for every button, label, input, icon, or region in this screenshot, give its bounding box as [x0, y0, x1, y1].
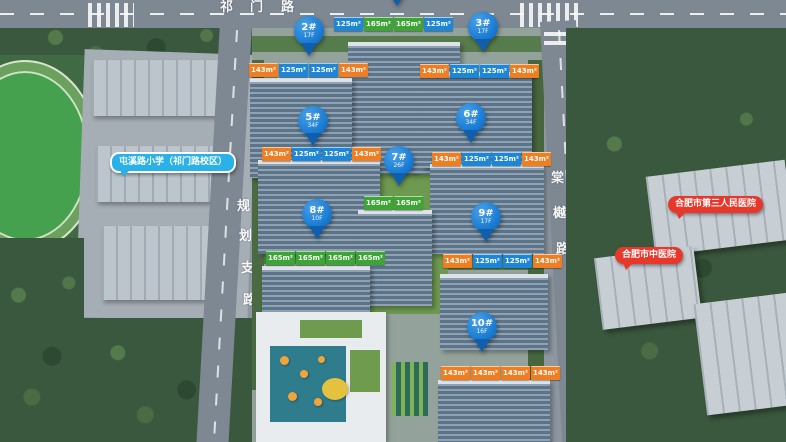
- unit-area-tag: 165m²: [364, 196, 393, 210]
- unit-area-tag: 125m²: [503, 254, 532, 268]
- unit-area-tag: 143m²: [352, 147, 381, 161]
- road-label-top: 祁: [220, 1, 233, 14]
- unit-area-tag: 143m²: [501, 366, 530, 380]
- road-label-left: 规: [237, 200, 250, 213]
- poi-tail-icon: [676, 212, 686, 219]
- unit-area-tag: 165m²: [364, 17, 393, 31]
- unit-area-tag: 143m²: [510, 64, 539, 78]
- pin-body: 2# 17F: [294, 16, 324, 46]
- building-pin-5[interactable]: 5# 34F: [297, 106, 329, 146]
- unit-area-tag: 125m²: [480, 64, 509, 78]
- unit-area-tag: 143m²: [443, 254, 472, 268]
- playground-mark: [318, 356, 325, 363]
- pin-body: 7# 26F: [384, 146, 414, 176]
- playground-sandpit: [322, 378, 348, 400]
- pin-tail-icon: [305, 133, 321, 146]
- unit-tags-building-8: 165m² 165m² 165m² 165m²: [266, 251, 385, 265]
- unit-area-tag: 143m²: [420, 64, 449, 78]
- road-label-right: 棠: [551, 172, 564, 185]
- pin-tail-icon: [475, 39, 491, 52]
- unit-area-tag: 125m²: [279, 63, 308, 77]
- unit-area-tag: 125m²: [462, 152, 491, 166]
- unit-area-tag: 143m²: [262, 147, 291, 161]
- pin-body: 6# 34F: [456, 103, 486, 133]
- unit-area-tag: 165m²: [266, 251, 295, 265]
- pin-floors: 10F: [311, 216, 322, 222]
- poi-bubble-school[interactable]: 屯溪路小学（祁门路校区）: [110, 152, 236, 173]
- unit-area-tag: 165m²: [326, 251, 355, 265]
- poi-label: 合肥市中医院: [622, 250, 676, 260]
- sports-court: [392, 362, 428, 416]
- pin-body: 3# 17F: [468, 12, 498, 42]
- pin-floors: 34F: [465, 120, 476, 126]
- pin-floors: 26F: [393, 163, 404, 169]
- pin-floors: 16F: [476, 329, 487, 335]
- unit-area-tag: 125m²: [450, 64, 479, 78]
- poi-tail-icon: [120, 170, 130, 177]
- unit-tags-building-2: 143m² 125m² 125m² 143m²: [249, 63, 368, 77]
- road-label-right: 樾: [553, 207, 566, 220]
- tower-10: [438, 380, 550, 442]
- unit-area-tag: 165m²: [394, 17, 423, 31]
- unit-tags-building-5: 143m² 125m² 125m² 143m²: [262, 147, 381, 161]
- unit-area-tag: 125m²: [309, 63, 338, 77]
- pin-tail-icon: [463, 130, 479, 143]
- unit-tags-building-10: 143m² 143m² 143m² 143m²: [441, 366, 560, 380]
- building-pin-7[interactable]: 7# 26F: [383, 146, 415, 186]
- unit-area-tag: 143m²: [522, 152, 551, 166]
- poi-label: 合肥市第三人民医院: [675, 199, 756, 209]
- poi-bubble-hospital-3rd[interactable]: 合肥市第三人民医院: [668, 196, 763, 213]
- unit-area-tag: 125m²: [424, 17, 453, 31]
- pin-tail-icon: [301, 43, 317, 56]
- unit-area-tag: 143m²: [471, 366, 500, 380]
- building-pin-8[interactable]: 8# 10F: [301, 199, 333, 239]
- unit-area-tag: 125m²: [334, 17, 363, 31]
- pin-body: 10# 16F: [467, 312, 497, 342]
- pin-floors: 17F: [480, 219, 491, 225]
- unit-area-tag: 143m²: [531, 366, 560, 380]
- unit-tags-building-1: 125m² 165m² 165m² 125m²: [334, 17, 453, 31]
- building-pin-1-partial[interactable]: [381, 0, 413, 6]
- pin-floors: 17F: [477, 29, 488, 35]
- hospital-building: [694, 293, 786, 416]
- unit-area-tag: 125m²: [473, 254, 502, 268]
- unit-area-tag: 143m²: [432, 152, 461, 166]
- pin-body: 8# 10F: [302, 199, 332, 229]
- pin-tail-icon: [474, 339, 490, 352]
- pin-tail-icon: [478, 229, 494, 242]
- pin-tail-icon: [391, 173, 407, 186]
- pin-body: 9# 17F: [471, 202, 501, 232]
- unit-tags-building-6: 143m² 125m² 125m² 143m²: [432, 152, 551, 166]
- playground-mark: [280, 356, 289, 365]
- building-pin-9[interactable]: 9# 17F: [470, 202, 502, 242]
- crosswalk: [88, 3, 134, 27]
- school-building: [92, 60, 224, 116]
- unit-area-tag: 143m²: [339, 63, 368, 77]
- kindergarten-roof-garden: [350, 350, 380, 392]
- building-pin-6[interactable]: 6# 34F: [455, 103, 487, 143]
- pin-floors: 17F: [303, 33, 314, 39]
- unit-area-tag: 125m²: [292, 147, 321, 161]
- poi-tail-icon: [623, 263, 633, 270]
- road-label-left: 划: [239, 230, 252, 243]
- unit-area-tag: 143m²: [533, 254, 562, 268]
- unit-area-tag: 125m²: [492, 152, 521, 166]
- playground-mark: [314, 398, 322, 406]
- unit-area-tag: 143m²: [249, 63, 278, 77]
- unit-area-tag: 165m²: [394, 196, 423, 210]
- building-pin-3[interactable]: 3# 17F: [467, 12, 499, 52]
- pin-floors: 34F: [307, 123, 318, 129]
- pin-tail-icon: [309, 226, 325, 239]
- unit-area-tag: 125m²: [322, 147, 351, 161]
- road-label-top: 门: [250, 1, 263, 14]
- playground-mark: [300, 370, 308, 378]
- building-pin-10[interactable]: 10# 16F: [466, 312, 498, 352]
- playground-mark: [288, 392, 297, 401]
- poi-bubble-hospital-tcm[interactable]: 合肥市中医院: [615, 247, 683, 264]
- building-pin-2[interactable]: 2# 17F: [293, 16, 325, 56]
- unit-area-tag: 165m²: [356, 251, 385, 265]
- pin-body: 5# 34F: [298, 106, 328, 136]
- poi-label: 屯溪路小学（祁门路校区）: [119, 157, 227, 167]
- unit-area-tag: 143m²: [441, 366, 470, 380]
- road-label-top: 路: [281, 1, 294, 14]
- pin-tail-icon: [389, 0, 405, 6]
- unit-area-tag: 165m²: [296, 251, 325, 265]
- site-plan-rendering: 祁 门 路 规 划 支 路: [0, 0, 786, 442]
- unit-tags-building-9: 143m² 125m² 125m² 143m²: [443, 254, 562, 268]
- trees: [0, 238, 84, 442]
- unit-tags-building-7: 165m² 165m²: [364, 196, 423, 210]
- unit-tags-building-3: 143m² 125m² 125m² 143m²: [420, 64, 539, 78]
- kindergarten-roof-garden: [300, 320, 362, 338]
